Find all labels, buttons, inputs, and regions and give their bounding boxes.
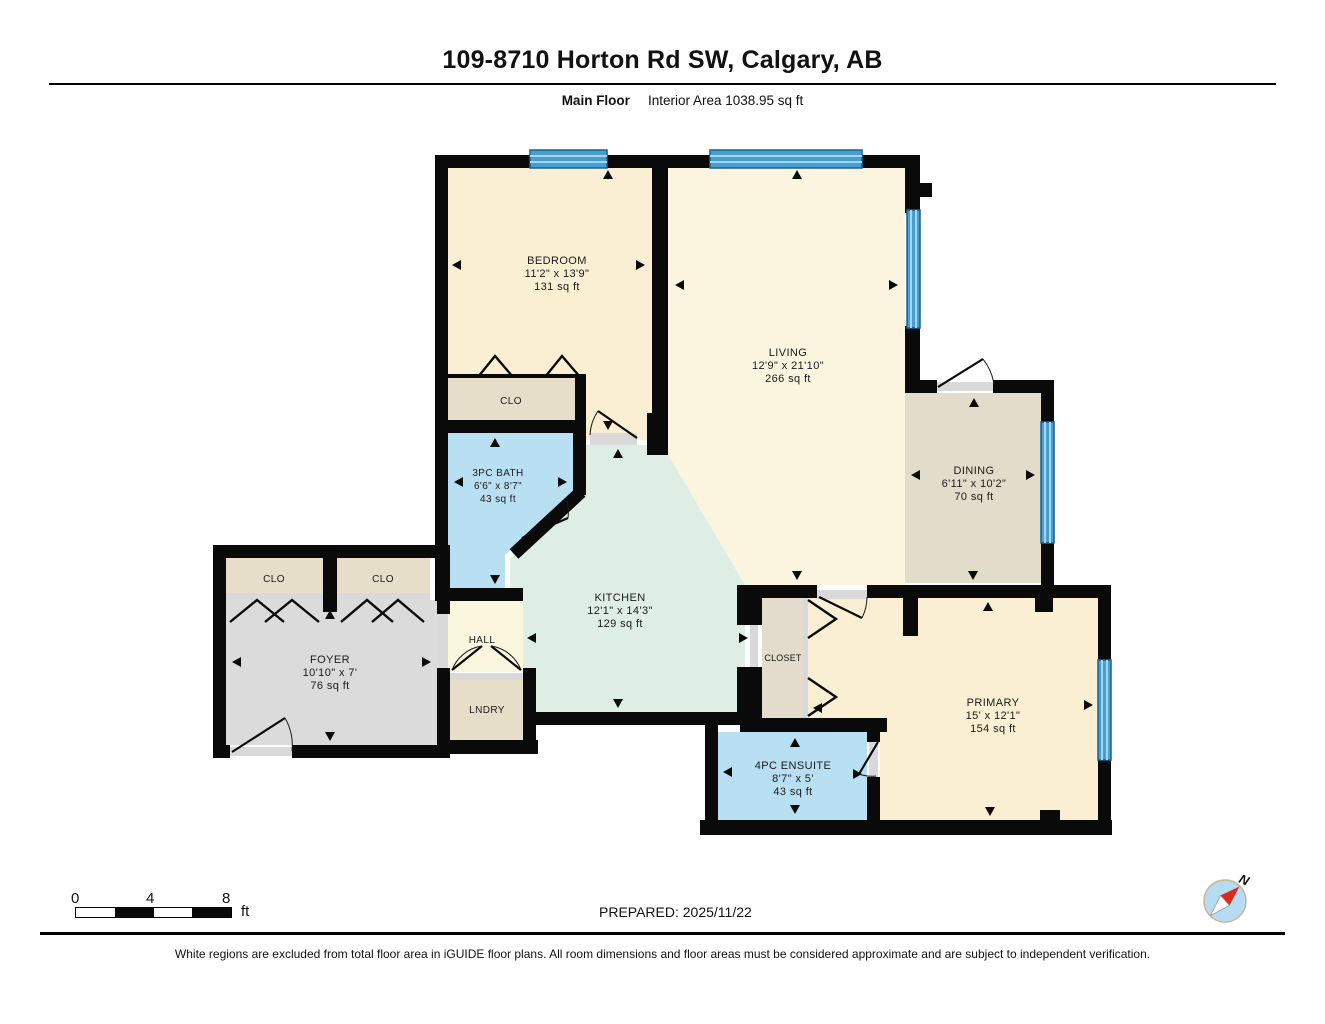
svg-text:12'9" x 21'10": 12'9" x 21'10" xyxy=(752,360,824,372)
svg-text:43 sq ft: 43 sq ft xyxy=(773,786,812,798)
scale-tick-4: 4 xyxy=(146,890,154,907)
svg-text:3PC BATH: 3PC BATH xyxy=(472,468,523,479)
prepared-date: PREPARED: 2025/11/22 xyxy=(599,904,752,920)
bath-label: 3PC BATH 6'6" x 8'7" 43 sq ft xyxy=(472,468,523,505)
floorplan-page: 109-8710 Horton Rd SW, Calgary, AB Main … xyxy=(0,0,1325,1024)
svg-text:DINING: DINING xyxy=(954,465,995,477)
window-dining-right xyxy=(1041,422,1054,543)
svg-text:6'6" x 8'7": 6'6" x 8'7" xyxy=(474,481,522,492)
svg-text:76 sq ft: 76 sq ft xyxy=(310,680,349,692)
window-living-right xyxy=(907,210,920,328)
primary-closet-label: CLOSET xyxy=(764,653,802,663)
scale-bar-segments xyxy=(75,907,232,918)
svg-text:KITCHEN: KITCHEN xyxy=(594,592,645,604)
svg-text:6'11" x 10'2": 6'11" x 10'2" xyxy=(942,478,1007,490)
svg-text:131 sq ft: 131 sq ft xyxy=(534,281,580,293)
disclaimer-text: White regions are excluded from total fl… xyxy=(0,947,1325,961)
svg-text:10'10" x 7': 10'10" x 7' xyxy=(303,667,358,679)
svg-text:LIVING: LIVING xyxy=(769,347,807,359)
floor-subtitle: Main FloorInterior Area 1038.95 sq ft xyxy=(20,93,1325,108)
svg-text:FOYER: FOYER xyxy=(310,654,350,666)
svg-text:154 sq ft: 154 sq ft xyxy=(970,723,1016,735)
header-divider xyxy=(49,83,1276,85)
floor-label: Main Floor xyxy=(562,93,630,108)
floorplan-drawing: BEDROOM 11'2" x 13'9" 131 sq ft LIVING 1… xyxy=(205,148,1115,848)
svg-text:BEDROOM: BEDROOM xyxy=(527,255,587,267)
svg-text:129 sq ft: 129 sq ft xyxy=(597,618,643,630)
compass-icon: N xyxy=(1197,870,1257,930)
scale-unit: ft xyxy=(241,903,249,920)
svg-text:4PC ENSUITE: 4PC ENSUITE xyxy=(755,760,832,772)
svg-text:8'7" x 5': 8'7" x 5' xyxy=(772,773,814,785)
scale-bar: 0 4 8 ft xyxy=(75,890,275,926)
svg-text:12'1" x 14'3": 12'1" x 14'3" xyxy=(587,605,653,617)
window-living-top xyxy=(710,150,862,168)
bedroom-label: BEDROOM 11'2" x 13'9" 131 sq ft xyxy=(525,255,590,293)
foyer-clo2-label: CLO xyxy=(372,574,394,585)
scale-tick-8: 8 xyxy=(222,890,230,907)
scale-tick-0: 0 xyxy=(71,890,79,907)
footer-divider xyxy=(40,932,1285,935)
svg-text:266 sq ft: 266 sq ft xyxy=(765,373,811,385)
page-title: 109-8710 Horton Rd SW, Calgary, AB xyxy=(0,46,1325,75)
laundry-label: LNDRY xyxy=(469,705,505,716)
bedroom-clo-label: CLO xyxy=(500,396,522,407)
primary-label: PRIMARY 15' x 12'1" 154 sq ft xyxy=(966,697,1021,735)
svg-text:15' x 12'1": 15' x 12'1" xyxy=(966,710,1021,722)
svg-text:11'2" x 13'9": 11'2" x 13'9" xyxy=(525,268,590,280)
foyer-label: FOYER 10'10" x 7' 76 sq ft xyxy=(303,654,358,692)
svg-text:PRIMARY: PRIMARY xyxy=(967,697,1020,709)
window-primary-right xyxy=(1098,660,1111,760)
hall-label: HALL xyxy=(469,635,496,646)
svg-text:70 sq ft: 70 sq ft xyxy=(954,491,993,503)
window-bedroom-top xyxy=(530,150,607,168)
interior-area-label: Interior Area 1038.95 sq ft xyxy=(648,93,803,108)
foyer-clo1-label: CLO xyxy=(263,574,285,585)
svg-text:43 sq ft: 43 sq ft xyxy=(480,494,516,505)
